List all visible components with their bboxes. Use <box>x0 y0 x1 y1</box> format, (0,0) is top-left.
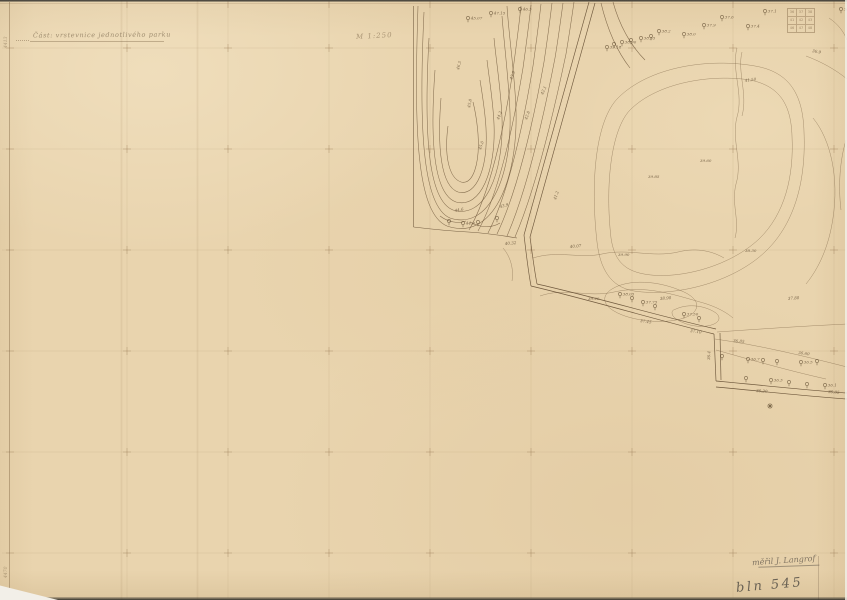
svg-text:37.1: 37.1 <box>768 9 777 14</box>
tree-icon <box>720 354 723 357</box>
svg-text:36.1: 36.1 <box>828 383 837 388</box>
svg-text:36.9: 36.9 <box>812 48 822 55</box>
stamp-cell: 36 <box>788 9 797 16</box>
elevation-labels: 46.545.845.044.243.542.842.144.643.941.2… <box>453 48 840 395</box>
svg-text:45.07: 45.07 <box>470 16 483 21</box>
tree-icon <box>466 16 469 19</box>
tree-icon <box>763 9 766 12</box>
svg-text:42.8: 42.8 <box>523 110 531 121</box>
svg-text:38.55: 38.55 <box>644 36 656 41</box>
tree-icon <box>697 316 700 319</box>
stamp-row: 414243 <box>788 17 814 25</box>
tree-icon <box>799 360 802 363</box>
map-title-handwritten: Část: vrstevnice jednotlivého parku <box>33 31 171 40</box>
tree-icon <box>823 383 826 386</box>
svg-text:38.90: 38.90 <box>660 295 672 301</box>
svg-text:36.20: 36.20 <box>756 388 768 394</box>
contour-lines <box>416 2 645 237</box>
scanned-map-sheet: 45.0747.1546.339.1838.9038.5538.238.037.… <box>0 0 847 600</box>
tree-icon <box>839 7 842 10</box>
tree-icon <box>775 359 778 362</box>
tree-icon <box>702 23 705 26</box>
svg-text:39.18: 39.18 <box>610 45 622 50</box>
stamp-cell: 47 <box>797 25 806 32</box>
tree-symbols: 45.0747.1546.339.1838.9038.5538.238.037.… <box>447 7 847 390</box>
svg-text:36.7: 36.7 <box>751 357 760 362</box>
svg-text:38.05: 38.05 <box>623 292 635 297</box>
svg-text:37.6: 37.6 <box>725 15 734 20</box>
survey-grid <box>2 1 846 598</box>
stamp-cell: 46 <box>788 25 797 32</box>
edge-mark-bottom: 4470 <box>4 567 9 578</box>
tree-icon <box>769 378 772 381</box>
svg-text:40.32: 40.32 <box>504 240 517 246</box>
point-marks <box>767 403 773 409</box>
svg-text:37.75: 37.75 <box>646 300 658 305</box>
svg-text:36.05: 36.05 <box>828 389 840 395</box>
svg-text:39.60: 39.60 <box>700 158 712 163</box>
tree-icon <box>744 376 747 379</box>
stamp-cell: 43 <box>806 17 814 24</box>
tree-icon <box>720 15 723 18</box>
svg-text:45.8: 45.8 <box>466 98 473 109</box>
svg-text:36.4: 36.4 <box>706 351 711 361</box>
svg-text:39.85: 39.85 <box>648 174 660 179</box>
tree-icon <box>641 300 644 303</box>
svg-text:43.5: 43.5 <box>508 70 517 81</box>
stamp-row: 464748 <box>788 25 814 32</box>
edge-mark-top: 4413 <box>4 37 9 48</box>
svg-text:46.5: 46.5 <box>455 60 463 71</box>
tree-icon <box>746 24 749 27</box>
svg-text:44.6: 44.6 <box>453 206 464 213</box>
tree-icon <box>476 220 479 223</box>
topographic-map-svg: 45.0747.1546.339.1838.9038.5538.238.037.… <box>0 0 847 600</box>
svg-text:37.9: 37.9 <box>707 23 716 28</box>
paper-crease <box>818 556 819 600</box>
title-rule-line <box>30 41 164 42</box>
svg-text:37.4: 37.4 <box>751 24 760 29</box>
tree-icon <box>639 36 642 39</box>
tree-icon <box>618 292 621 295</box>
svg-text:42.1: 42.1 <box>539 85 548 96</box>
tree-icon <box>815 359 818 362</box>
svg-text:41.2: 41.2 <box>552 190 560 201</box>
tree-icon <box>495 216 498 219</box>
svg-text:38.2: 38.2 <box>662 29 671 34</box>
svg-text:37.80: 37.80 <box>788 295 800 301</box>
svg-text:41.50: 41.50 <box>743 76 756 83</box>
title-leader-dots <box>16 40 29 41</box>
svg-text:36.5: 36.5 <box>804 360 813 365</box>
stamp-row: 363738 <box>788 9 814 17</box>
tree-icon <box>518 7 521 10</box>
stamp-cell: 38 <box>806 9 814 16</box>
svg-text:39.20: 39.20 <box>588 296 600 301</box>
tree-icon <box>682 32 685 35</box>
svg-text:37.45: 37.45 <box>640 318 652 325</box>
stamp-cell: 48 <box>806 25 814 32</box>
stamp-cell: 37 <box>797 9 806 16</box>
svg-text:46.3: 46.3 <box>522 7 532 12</box>
svg-text:36.85: 36.85 <box>733 338 745 344</box>
sheet-index-stamp: 363738414243464748 <box>787 8 815 33</box>
tree-icon <box>653 304 656 307</box>
svg-text:37.10: 37.10 <box>690 328 702 335</box>
svg-text:36.3: 36.3 <box>774 378 783 383</box>
tree-icon <box>761 358 764 361</box>
svg-text:47.15: 47.15 <box>493 11 506 16</box>
tree-icon <box>489 11 492 14</box>
svg-text:37.50: 37.50 <box>687 312 699 317</box>
svg-text:38.0: 38.0 <box>687 32 696 37</box>
scan-edge-top <box>0 0 847 2</box>
svg-text:44.9: 44.9 <box>465 221 475 226</box>
stamp-cell: 41 <box>788 17 797 24</box>
svg-text:40.07: 40.07 <box>569 243 582 249</box>
svg-text:39.90: 39.90 <box>618 252 630 257</box>
stamp-cell: 42 <box>797 17 806 24</box>
tree-icon <box>787 380 790 383</box>
tree-icon <box>805 382 808 385</box>
tree-icon <box>657 29 660 32</box>
svg-text:38.30: 38.30 <box>745 248 757 253</box>
road-double-lines <box>524 2 847 399</box>
tree-icon <box>682 312 685 315</box>
tree-icon <box>620 40 623 43</box>
